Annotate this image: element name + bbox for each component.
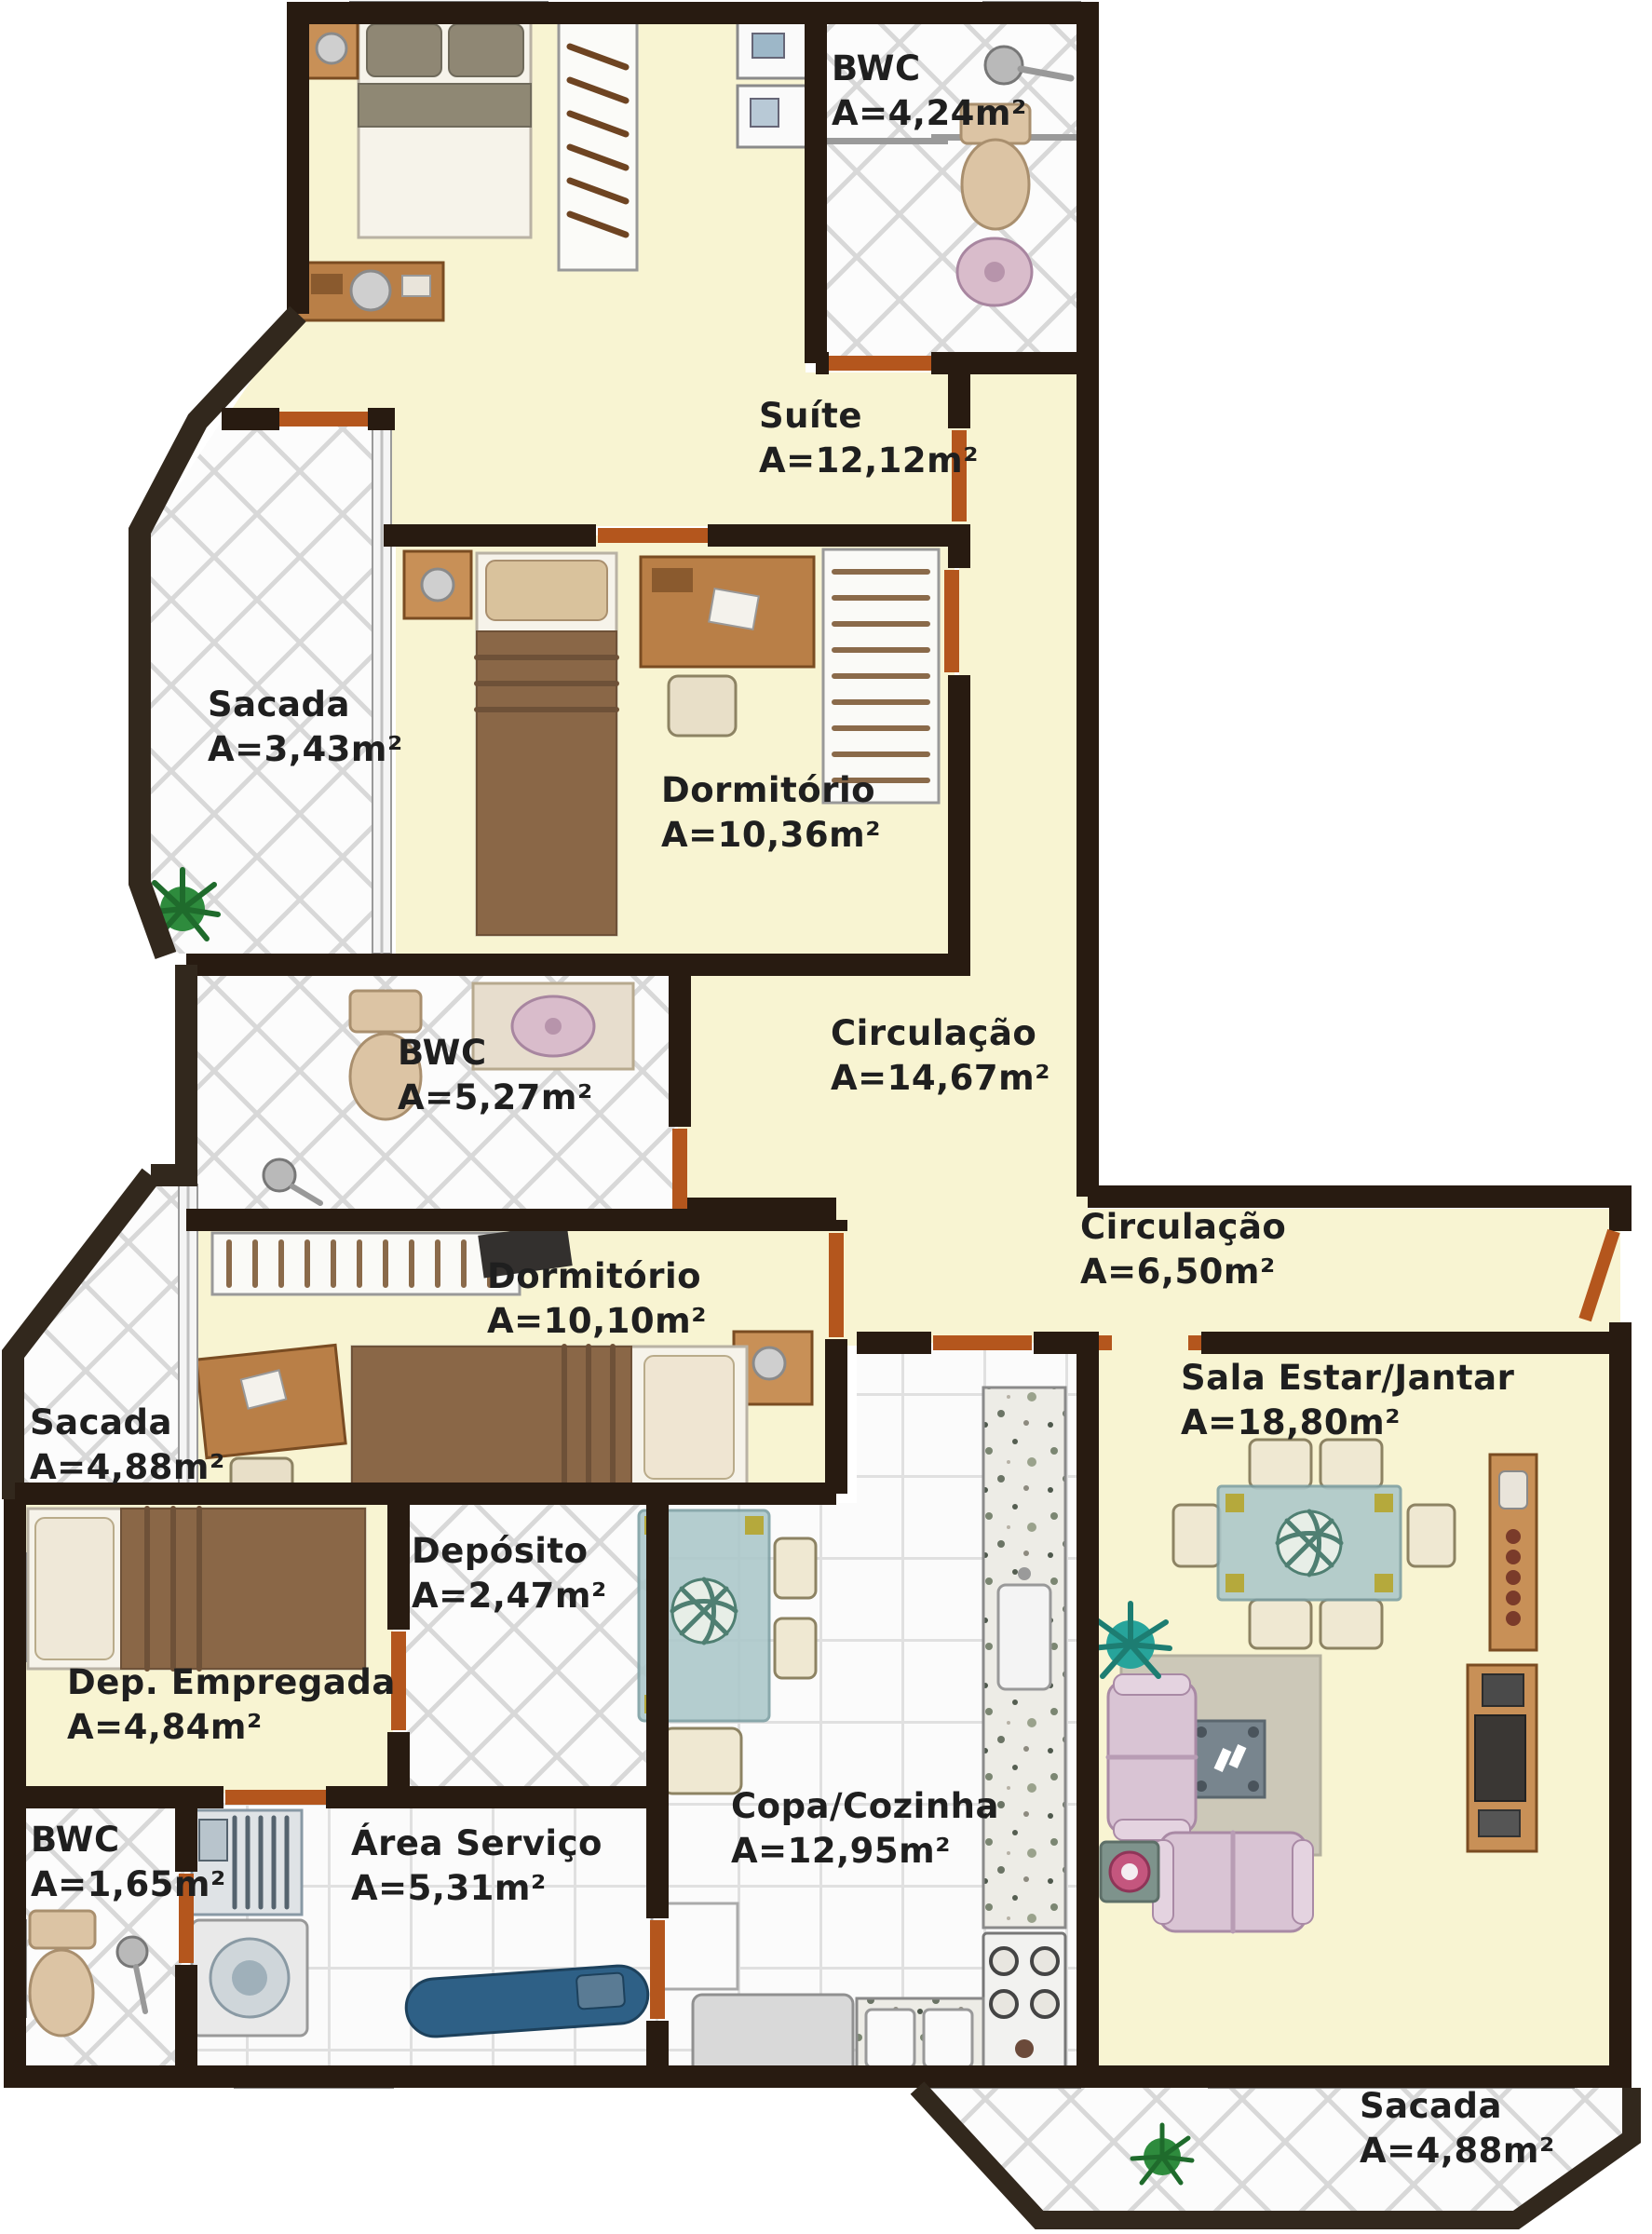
door-deposito (391, 1631, 406, 1730)
sofa-loveseat (1153, 1833, 1313, 1931)
door-sacada-suite (279, 412, 368, 426)
coffee-table (1190, 1721, 1265, 1797)
room-floor-deposito (404, 1503, 654, 1794)
door-bwc-suite (829, 356, 931, 371)
kitchen-side-counter (983, 1388, 1065, 1928)
dormitorio2-bed (352, 1347, 747, 1488)
dormitorio1-nightstand (404, 551, 471, 618)
suite-dresser (296, 263, 443, 320)
floor-plan: BWCA=4,24m²SuíteA=12,12m²SacadaA=3,43m²D… (0, 0, 1652, 2234)
tv-stand (1468, 1665, 1537, 1851)
kitchen-stove (983, 1933, 1065, 2073)
floor-plan-canvas (0, 0, 1652, 2234)
side-table (1101, 1842, 1158, 1902)
room-floor-bwc-suite (818, 13, 1088, 365)
laundry-tank (192, 1810, 302, 1915)
door-jamb-sala-right (1188, 1335, 1201, 1350)
door-cozinha-servico (650, 1920, 665, 2019)
suite-closet (559, 20, 637, 270)
door-suite (598, 528, 708, 543)
door-bwc-social (672, 1129, 687, 1209)
bwc-social-toilet (350, 991, 421, 1119)
bwc-suite-toilet (961, 104, 1030, 229)
door-dormitorio1 (944, 570, 959, 672)
door-dormitorio2 (829, 1233, 844, 1337)
bar-cabinet (1490, 1455, 1537, 1650)
kitchen-fridge (693, 1995, 853, 2075)
room-floor-sacada-suite (140, 421, 372, 954)
kitchen-sink-counter (857, 1998, 983, 2077)
window-sacada-suite (372, 421, 391, 954)
room-floor-circulacao-2 (836, 1209, 1620, 1346)
wall-circ-dorm2 (186, 1209, 836, 1220)
dormitorio1-wardrobe (823, 549, 939, 803)
bwc-social-sink-counter (473, 983, 633, 1069)
dormitorio2-wardrobe (212, 1233, 520, 1294)
dep-empregada-bed (28, 1509, 365, 1669)
suite-nightstand (304, 19, 358, 78)
bwc-servico-toilet (30, 1911, 95, 2036)
door-jamb-sala-left (1099, 1335, 1112, 1350)
door-suite-circ (952, 430, 967, 521)
sofa-two-seat (1108, 1674, 1196, 1840)
bwc-suite-basin (957, 238, 1032, 305)
door-dep-empregada (225, 1790, 326, 1805)
door-copa (933, 1335, 1032, 1350)
dormitorio1-bed (477, 553, 616, 935)
door-bwc-servico (179, 1874, 194, 1963)
suite-bed (349, 4, 545, 237)
washing-machine (192, 1920, 307, 2036)
